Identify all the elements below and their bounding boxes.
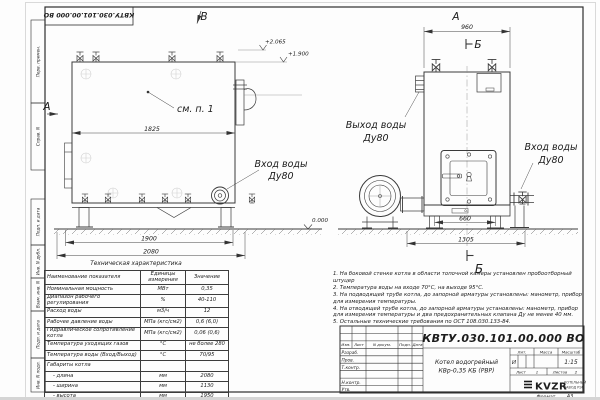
row-units [141, 361, 186, 371]
header-units: Единицы измерения [141, 271, 186, 285]
section-b-top-text: Б [474, 39, 481, 51]
sheets-value: 2 [575, 370, 578, 375]
lit-value: И [512, 360, 517, 366]
row-name: Диапазон рабочего регулирования [45, 295, 141, 307]
row-value: 70/95 [186, 350, 229, 360]
role-tkontr: Т.контр. [342, 365, 361, 371]
row-units: % [141, 295, 186, 307]
col-list: Лист [353, 342, 365, 347]
dim-1305-text: 1305 [458, 237, 474, 244]
frame-column-label: Перв. примен. [36, 46, 41, 77]
row-value [186, 361, 229, 371]
ground-hatch-left [54, 229, 322, 235]
row-value: 12 [186, 307, 229, 317]
dim-1900-text: 1900 [141, 236, 157, 243]
table-row: Температура воды (Вход/Выход)°С70/95 [45, 350, 229, 360]
row-value: 40-110 [186, 295, 229, 307]
inlet-label-left-2: Ду80 [267, 171, 293, 182]
air-valves [77, 52, 224, 62]
row-value: 0,6 (6,0) [186, 317, 229, 327]
fan-duct [401, 196, 425, 213]
drawing-sheet: Перв. примен. Справ. N Подп. и дата Инв.… [0, 0, 600, 400]
frame-column-label: Инв. N дубл. [36, 248, 41, 275]
row-value: 2080 [186, 371, 229, 381]
dim-660-text: 660 [459, 216, 471, 223]
mass-label: Масса [540, 349, 553, 354]
row-units: МВт [141, 285, 186, 295]
tech-table-title: Техническая характеристика [44, 261, 228, 270]
scale-label: Масштаб [562, 349, 581, 354]
row-units: м3/ч [141, 307, 186, 317]
support-legs-left-view [72, 208, 235, 228]
role-nkontr: Н.контр. [342, 380, 361, 386]
inlet-label-right-1: Вход воды [524, 142, 578, 153]
sheet-label: Лист [515, 370, 527, 375]
technical-notes: 1. На боковой стенке котла в области топ… [333, 271, 586, 326]
note-item: 5. Остальные технические требования по О… [333, 319, 586, 326]
lit-label: Лит. [517, 349, 527, 354]
row-value: не более 280 [186, 340, 229, 350]
side-left-panel [65, 143, 73, 188]
sheets-label: Листов [552, 370, 568, 375]
level-zero-text: 0.000 [312, 218, 328, 224]
level-mark-2065 [238, 45, 267, 50]
dim-960-text: 960 [461, 24, 473, 31]
row-name: - длина [45, 371, 141, 381]
table-row: - ширинамм1130 [45, 382, 229, 392]
level-2065-text: +2.065 [265, 40, 286, 46]
row-units: °С [141, 350, 186, 360]
header-value: Значение [186, 271, 229, 285]
dim-960 [424, 27, 510, 68]
front-top-valves [432, 60, 497, 73]
note-item: 4. На отводящей трубе котла, до запорной… [333, 306, 586, 320]
level-mark-zero [304, 225, 312, 230]
col-podp: Подп. [399, 342, 411, 347]
top-left-doc-stamp: КВТУ.030.101.00.000 ВО [43, 7, 134, 25]
row-units: мм [141, 382, 186, 392]
furnace-door [441, 151, 496, 206]
frame-column-label: Справ. N [36, 126, 41, 146]
dim-1825-text: 1825 [144, 126, 160, 133]
frame-column-label: Инв. N подл. [36, 361, 41, 389]
row-units: МПа (кгс/см2) [141, 328, 186, 340]
tech-table: Наименование показателя Единицы измерени… [44, 270, 229, 400]
row-value: 0,06 (0,6) [186, 328, 229, 340]
table-row: Гидравлическое сопротивление котлаМПа (к… [45, 328, 229, 340]
frame-column-label: Подп. и дата [36, 320, 41, 349]
section-b-marker-top [466, 39, 473, 49]
outlet-leader [405, 92, 419, 117]
row-name: Номинальная мощность [45, 285, 141, 295]
row-value: 1130 [186, 382, 229, 392]
view-a-marker-label: А [42, 101, 50, 113]
frame-column-labels: Перв. примен. Справ. N Подп. и дата Инв.… [36, 46, 41, 389]
role-utv: Утв. [342, 387, 351, 393]
doc-number: КВТУ.030.101.00.000 ВО [422, 332, 584, 345]
table-row: Расход водым3/ч12 [45, 307, 229, 317]
kvzr-logo-text: KVZR [535, 382, 567, 393]
scale-value: 1:15 [564, 359, 578, 366]
inlet-label-right-2: Ду80 [537, 155, 563, 166]
row-name: Гидравлическое сопротивление котла [45, 328, 141, 340]
logo-sub-1: КОТЕЛЬНЫЙ [564, 380, 587, 385]
table-row: - длинамм2080 [45, 371, 229, 381]
row-name: Расход воды [45, 307, 141, 317]
row-name: Рабочее давление воды [45, 317, 141, 327]
outlet-label-2: Ду80 [362, 133, 388, 144]
section-b-marker-bottom [467, 250, 474, 261]
table-header-row: Наименование показателя Единицы измерени… [45, 271, 229, 285]
product-name-1: Котел водогрейный [435, 359, 498, 366]
callout-text: см. п. 1 [177, 104, 214, 115]
table-row: Рабочее давление водыМПа (кгс/см2)0,6 (6… [45, 317, 229, 327]
door-lock [467, 172, 471, 176]
water-inlet-flange [212, 187, 229, 204]
dim-2080-text: 2080 [143, 249, 159, 256]
table-row: Номинальная мощностьМВт0,35 [45, 285, 229, 295]
role-prov: Пров. [342, 357, 355, 363]
row-name: Температура воды (Вход/Выход) [45, 350, 141, 360]
tech-characteristics-table: Техническая характеристика Наименование … [44, 261, 228, 400]
level-mark-1900 [235, 57, 287, 62]
faint-marks [81, 69, 182, 198]
drain-valves [82, 194, 255, 203]
table-row: Габариты котла [45, 361, 229, 371]
outlet-elbow [233, 80, 302, 125]
frame-column-label: Подп. и дата [36, 207, 41, 236]
doc-number-rotated: КВТУ.030.101.00.000 ВО [43, 11, 134, 19]
table-row: Температура уходящих газов°Сне более 280 [45, 340, 229, 350]
note-item: 2. Температура воды на входе 70°С, на вы… [333, 285, 586, 292]
row-name: Габариты котла [45, 361, 141, 371]
row-value: 0,35 [186, 285, 229, 295]
inlet-leader-left [227, 170, 259, 189]
row-name: - ширина [45, 382, 141, 392]
table-row: Диапазон рабочего регулирования%40-110 [45, 295, 229, 307]
inlet-label-left-1: Вход воды [254, 159, 308, 170]
col-data: Дата [411, 342, 423, 347]
row-units: °С [141, 340, 186, 350]
frame-column-label: Взам. инв. N [36, 280, 41, 308]
row-units: МПа (кгс/см2) [141, 317, 186, 327]
product-name-2: КВр-0,35 КБ (РВР) [439, 368, 495, 375]
kvzr-logo-icon [524, 382, 532, 388]
row-units: мм [141, 371, 186, 381]
ground-hatch-right [338, 229, 578, 235]
level-1900-text: +1.900 [288, 52, 309, 58]
view-a-label: А [451, 11, 459, 23]
col-ndoc: N докум. [373, 342, 391, 347]
outlet-flange-front [416, 76, 425, 92]
note-item: 1. На боковой стенке котла в области топ… [333, 271, 586, 285]
left-view [47, 11, 322, 259]
row-name: Температура уходящих газов [45, 340, 141, 350]
top-hatch-panel [477, 74, 501, 93]
outlet-label-1: Выход воды [346, 120, 407, 131]
callout-see-item-1 [147, 91, 174, 108]
col-izm: Изм. [341, 342, 350, 347]
blower-fan [360, 176, 401, 229]
view-b-label: В [200, 11, 207, 23]
note-item: 3. На подводящей трубе котла, до запорно… [333, 292, 586, 306]
header-name: Наименование показателя [45, 271, 141, 285]
sheet-value: 1 [536, 370, 538, 375]
inlet-leader-right [521, 163, 533, 189]
inlet-valve-right [510, 192, 534, 228]
logo-sub-2: ЗАВОД РЭП [564, 386, 585, 390]
role-razrab: Разраб. [342, 350, 359, 356]
